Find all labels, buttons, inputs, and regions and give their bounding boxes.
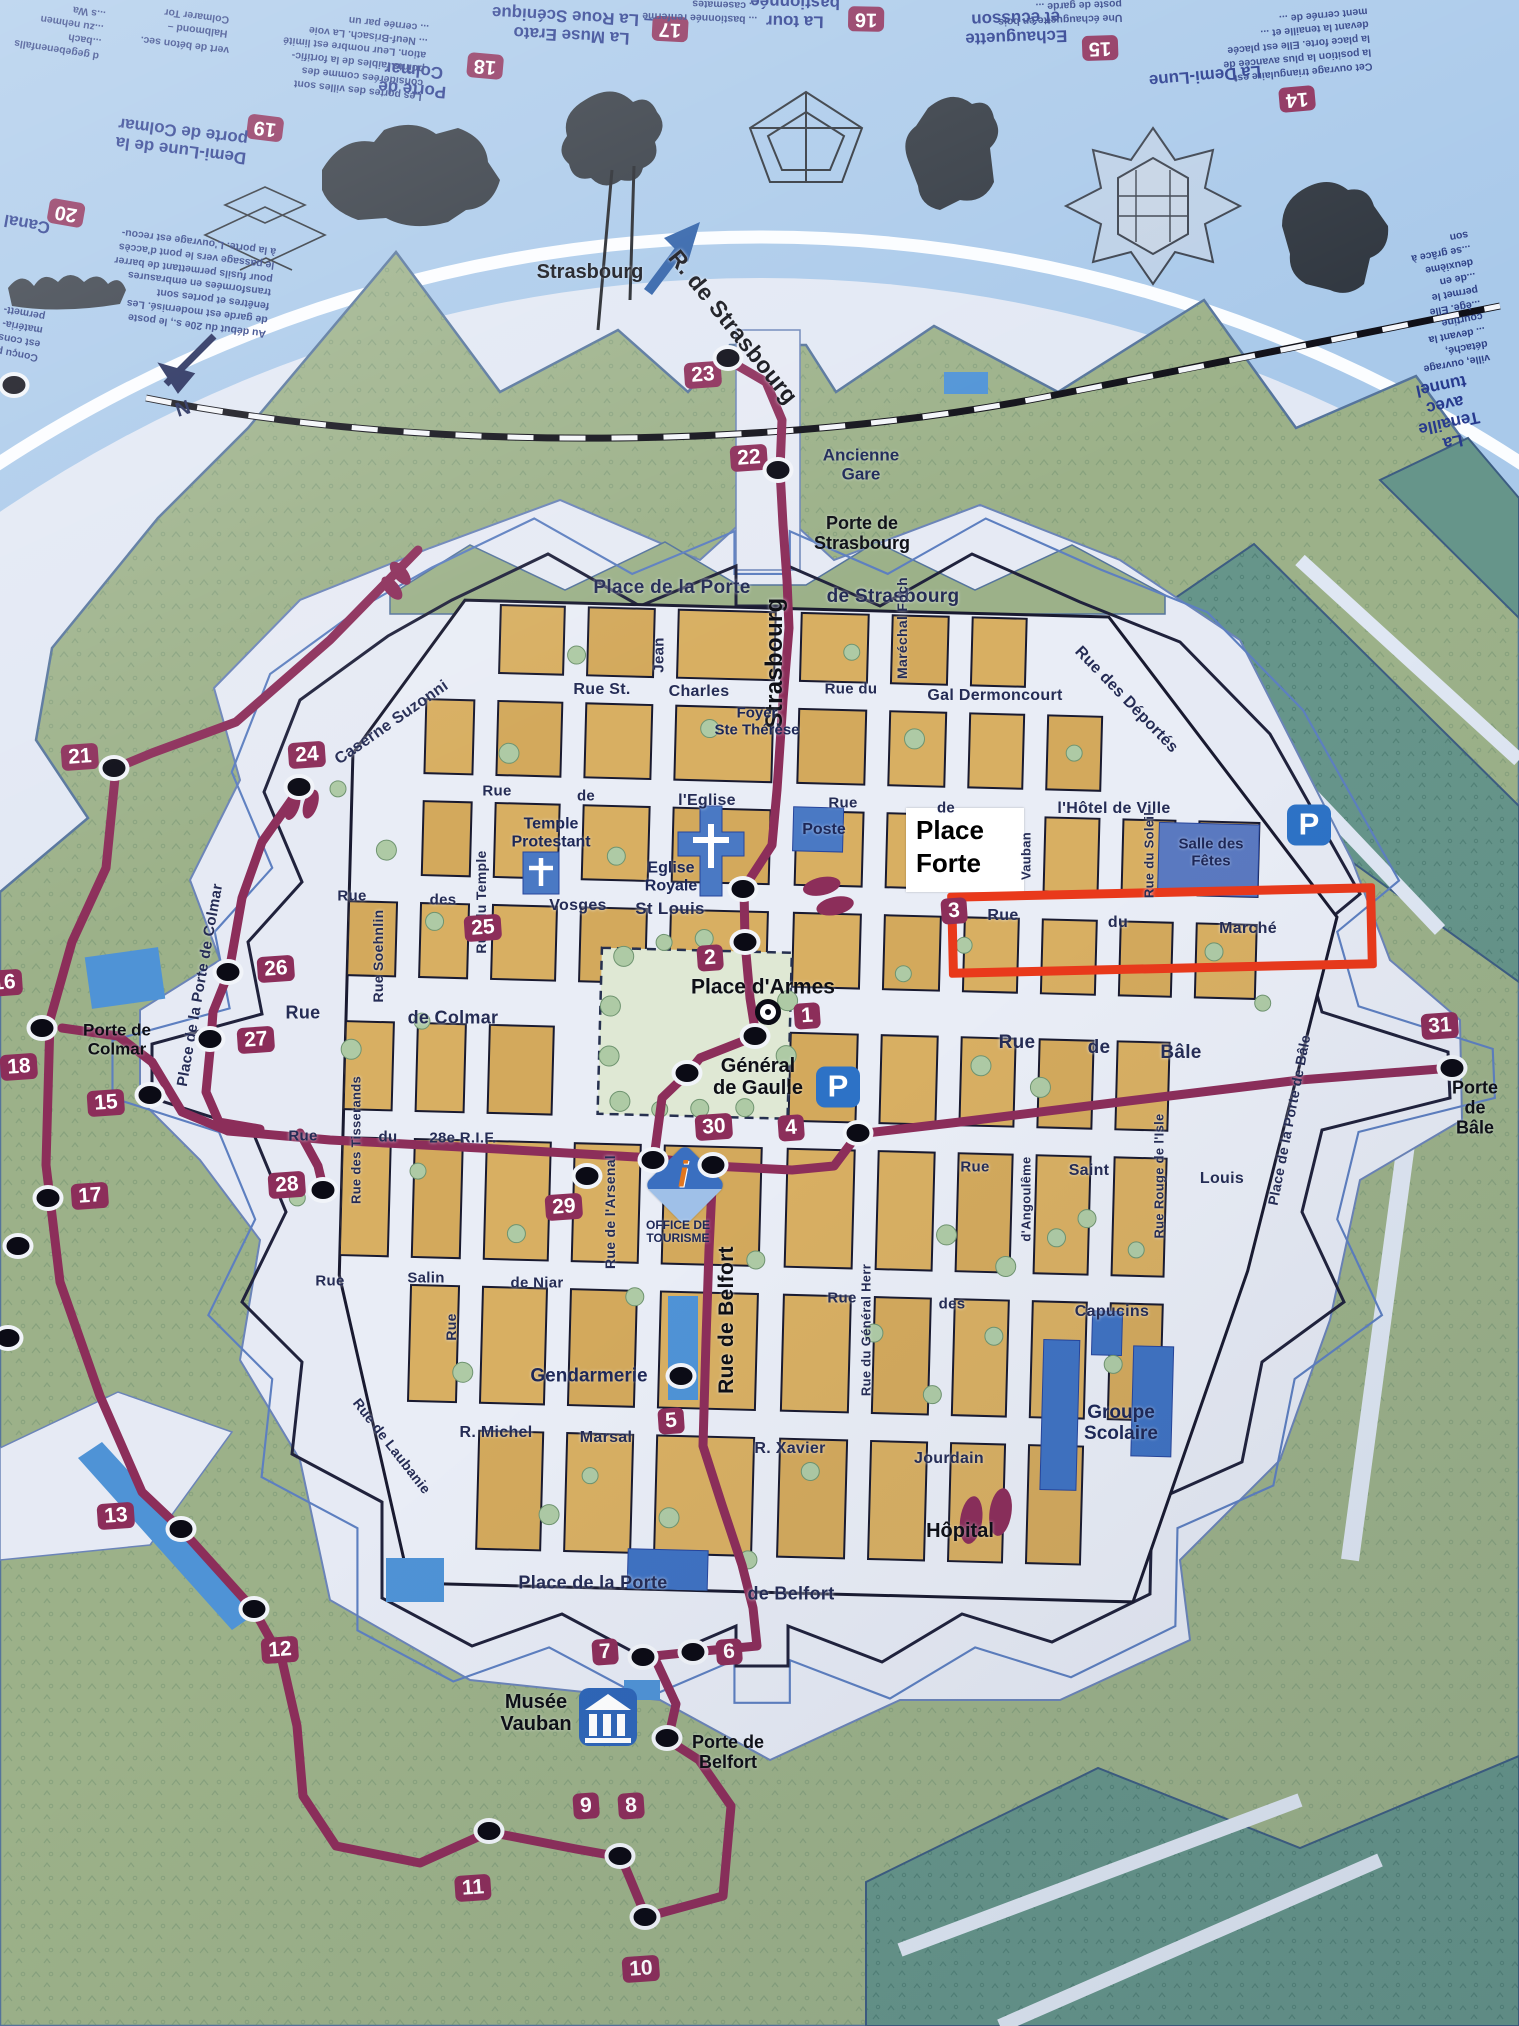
street-label: Vosges (549, 897, 607, 915)
route-marker: 16 (0, 969, 24, 998)
street-label: Gal Dermoncourt (927, 687, 1062, 705)
place-label: Gendarmerie (530, 1367, 647, 1388)
street-label: Rue (999, 1032, 1036, 1054)
route-marker: 3 (940, 897, 967, 925)
street-label: Rue (987, 907, 1018, 925)
highlight-rectangle (947, 883, 1377, 978)
place-label: OFFICE DE TOURISME (646, 1219, 710, 1245)
route-marker: 28 (267, 1171, 306, 1200)
place-label: Eglise Royale (645, 859, 697, 894)
route-stop-dot (0, 1325, 24, 1351)
street-label: R. Xavier (754, 1440, 825, 1458)
street-label: R. de Strasbourg (663, 245, 804, 410)
street-label: Salin (407, 1270, 444, 1287)
street-label: Rue des Tisserands (349, 1076, 364, 1204)
street-label: des (939, 1296, 966, 1313)
street-label: Rue du (825, 681, 878, 698)
route-stop-dot (239, 1596, 270, 1622)
street-label: de Colmar (408, 1008, 499, 1029)
route-stop-dot (638, 1147, 669, 1173)
street-label: Louis (1200, 1170, 1244, 1188)
street-label: 28e R.I.F. (429, 1130, 496, 1147)
route-stop-dot (0, 372, 30, 398)
street-label: Saint (1069, 1162, 1110, 1180)
route-stop-dot (99, 755, 130, 781)
street-label: Rue de Laubanie (350, 1395, 434, 1497)
route-marker: 29 (544, 1193, 583, 1222)
place-label: Temple Protestant (511, 815, 590, 850)
route-stop-dot (474, 1818, 505, 1844)
route-stop-dot (628, 1644, 659, 1670)
legend-text-fragment: d gegebenenfalls ...bach ...zu nehmen ..… (13, 0, 106, 62)
parking-icon: P (1287, 805, 1331, 846)
route-stop-dot (27, 1015, 58, 1041)
route-stop-dot (652, 1725, 683, 1751)
legend-text-fragment: ville, ouvrage détaché, ... devant la co… (1389, 227, 1491, 377)
place-label: Porte de Strasbourg (814, 514, 910, 554)
route-stop-dot (666, 1363, 697, 1389)
street-label: Rue du Général Herr (859, 1264, 874, 1396)
street-label: Charles (669, 683, 730, 701)
street-label: Place de la Porte (518, 1573, 667, 1594)
route-stop-dot (678, 1639, 709, 1665)
street-label: Rue (960, 1159, 989, 1176)
street-label: Rue de Belfort (715, 1246, 739, 1394)
street-label: St Louis (635, 899, 704, 919)
street-label: de (1088, 1037, 1111, 1059)
route-stop-dot (308, 1177, 339, 1203)
route-marker: 24 (287, 741, 326, 770)
parking-icon: P (816, 1067, 860, 1108)
street-label: Place de la Porte de Bâle (1265, 1033, 1314, 1206)
route-stop-dot (713, 345, 744, 371)
street-label: Rue (827, 1290, 856, 1307)
route-marker: 12 (260, 1636, 299, 1665)
street-label: de Belfort (747, 1584, 834, 1605)
street-label: Maréchal Foch (894, 577, 910, 679)
route-marker: 8 (617, 1792, 644, 1820)
legend-title: La Tenaille avec tunnel (1404, 369, 1490, 458)
street-label: Rue St. (573, 681, 630, 699)
street-label: Rue (286, 1003, 321, 1024)
route-stop-dot (135, 1082, 166, 1108)
place-label: Strasbourg (537, 261, 644, 283)
street-label: Rue Rouge de l'Isle (1152, 1113, 1167, 1238)
route-stop-dot (698, 1152, 729, 1178)
route-stop-dot (166, 1516, 197, 1542)
place-darmes-center-icon (755, 999, 781, 1025)
route-stop-dot (195, 1026, 226, 1052)
legend-text-fragment: Cet ouvrage triangulaire est la position… (1219, 3, 1373, 85)
place-label: Place d'Armes (691, 975, 835, 998)
street-label: Rue (482, 783, 511, 800)
street-label: Rue du Soleil (1142, 812, 1157, 898)
route-marker: 11 (454, 1874, 492, 1903)
route-marker: 5 (657, 1407, 684, 1435)
street-label: de Strasbourg (827, 586, 960, 608)
route-stop-dot (605, 1843, 636, 1869)
compass-north-label: N (173, 396, 194, 422)
route-marker: 26 (256, 955, 295, 984)
route-marker: 19 (245, 113, 284, 142)
route-stop-dot (213, 959, 244, 985)
place-label: Porte de Belfort (692, 1733, 764, 1773)
place-label: Salle des Fêtes (1178, 837, 1243, 870)
legend-text-fragment: Les portes des villes sont considérées c… (278, 5, 429, 103)
route-stop-dot (1437, 1055, 1468, 1081)
route-stop-dot (730, 929, 761, 955)
place-label: Hôpital (926, 1520, 994, 1542)
place-label: Porte de Bâle (1452, 1078, 1498, 1137)
legend-title: Canal (3, 211, 52, 238)
route-marker: 4 (777, 1114, 804, 1142)
route-marker: 21 (60, 743, 99, 772)
place-label: Général de Gaulle (713, 1055, 803, 1099)
legend-text-fragment: Au début du 20e s., le poste de garde es… (107, 224, 277, 340)
route-marker: 31 (1420, 1012, 1459, 1041)
legend-text-fragment: ... bastionnée renferme ... casemates (642, 0, 758, 26)
street-label: Rue (337, 888, 366, 905)
street-label: Bâle (1160, 1042, 1201, 1064)
place-label: Ancienne Gare (823, 446, 900, 483)
street-label: de (577, 788, 595, 805)
street-label: Vauban (1019, 832, 1034, 880)
route-marker: 6 (715, 1638, 742, 1666)
route-stop-dot (843, 1120, 874, 1146)
street-label: Rue (315, 1273, 344, 1290)
route-stop-dot (3, 1233, 34, 1259)
route-marker: 7 (591, 1638, 618, 1666)
legend-text-fragment: Halbmond – Colmarer Tor (162, 4, 230, 39)
map-photo: Place Forte N i R. de StrasbourgPlace de… (0, 0, 1519, 2026)
route-stop-dot (284, 774, 315, 800)
street-label: Rue (288, 1128, 317, 1145)
route-stop-dot (572, 1163, 603, 1189)
legend-title: Demi-Lune de la porte de Colmar (115, 114, 250, 168)
street-label: de Niar (511, 1275, 564, 1292)
route-marker: 10 (621, 1955, 660, 1984)
route-marker: 1 (793, 1002, 820, 1030)
street-label: du (379, 1129, 398, 1146)
street-label: Rue de l'Arsenal (602, 1155, 618, 1269)
street-label: R. Michel (460, 1424, 533, 1442)
street-label: l'Eglise (678, 792, 736, 810)
street-label: d'Angoulême (1019, 1156, 1034, 1241)
route-stop-dot (672, 1060, 703, 1086)
street-label: Rue (828, 795, 857, 812)
route-stop-dot (763, 457, 794, 483)
street-label: du (1108, 914, 1128, 932)
street-label: Marsal (580, 1429, 633, 1447)
street-label: Place de la Porte de Colmar (174, 882, 226, 1088)
route-stop-dot (33, 1185, 64, 1211)
street-label: des (430, 892, 457, 909)
route-marker: 18 (0, 1053, 39, 1082)
street-label: Capucins (1075, 1303, 1149, 1321)
place-label: Poste (802, 821, 846, 839)
label-layer: Place Forte N i R. de StrasbourgPlace de… (0, 0, 1519, 2026)
route-stop-dot (728, 876, 759, 902)
route-marker: 9 (572, 1792, 599, 1820)
street-label: Jourdain (914, 1450, 984, 1468)
place-label: Musée Vauban (500, 1691, 571, 1735)
legend-title: La tour bastionnée (750, 0, 840, 32)
route-stop-dot (630, 1904, 661, 1930)
street-label: Caserne Suzonni (332, 677, 452, 769)
route-marker: 15 (86, 1089, 125, 1118)
place-label: Porte de Colmar (83, 1021, 151, 1058)
route-marker: 18 (466, 52, 504, 80)
legend-title: La Muse Erato – La Roue Scénique (490, 3, 653, 49)
route-marker: 25 (463, 914, 502, 943)
street-label: Rue (443, 1313, 459, 1340)
route-marker: 15 (1081, 35, 1118, 61)
legend-text-fragment: Conçu par est const- matéria- permett- (0, 300, 46, 364)
route-marker: 16 (848, 6, 885, 32)
legend-text-fragment: Une échauguette en bois poste de garde .… (997, 0, 1122, 28)
street-label: de (937, 800, 955, 817)
route-marker: 27 (236, 1026, 275, 1055)
route-marker: 20 (46, 198, 86, 229)
route-marker: 13 (96, 1502, 135, 1531)
route-marker: 2 (696, 944, 723, 972)
place-label: Groupe Scolaire (1084, 1403, 1158, 1445)
street-label: Jean (651, 637, 668, 672)
route-stop-dot (740, 1023, 771, 1049)
street-label: Place de la Porte (593, 577, 750, 599)
route-marker: 30 (694, 1113, 733, 1142)
place-forte-label: Place Forte (906, 808, 1024, 892)
street-label: Marché (1219, 920, 1277, 938)
street-label: Rue Soehnlin (370, 909, 386, 1002)
place-label: Foyer Ste Thérèse (714, 706, 799, 739)
route-marker: 17 (70, 1182, 109, 1211)
route-marker: 14 (1278, 85, 1316, 113)
street-label: Rue des Déportés (1071, 643, 1182, 757)
